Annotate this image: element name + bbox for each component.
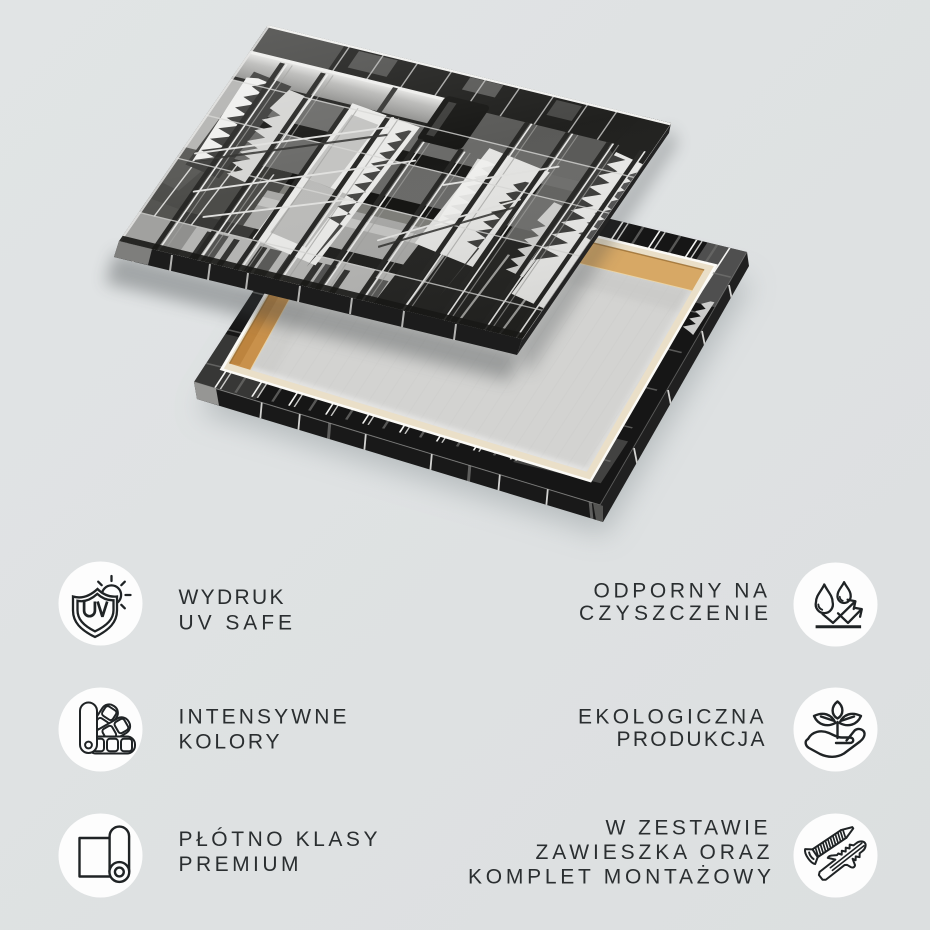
svg-text:KOMPLET MONTAŻOWY: KOMPLET MONTAŻOWY: [468, 866, 771, 889]
svg-text:PRODUKCJA: PRODUKCJA: [617, 728, 765, 751]
svg-text:ODPORNY NA: ODPORNY NA: [594, 580, 768, 603]
svg-text:PREMIUM: PREMIUM: [179, 853, 299, 876]
svg-text:EKOLOGICZNA: EKOLOGICZNA: [578, 706, 764, 729]
